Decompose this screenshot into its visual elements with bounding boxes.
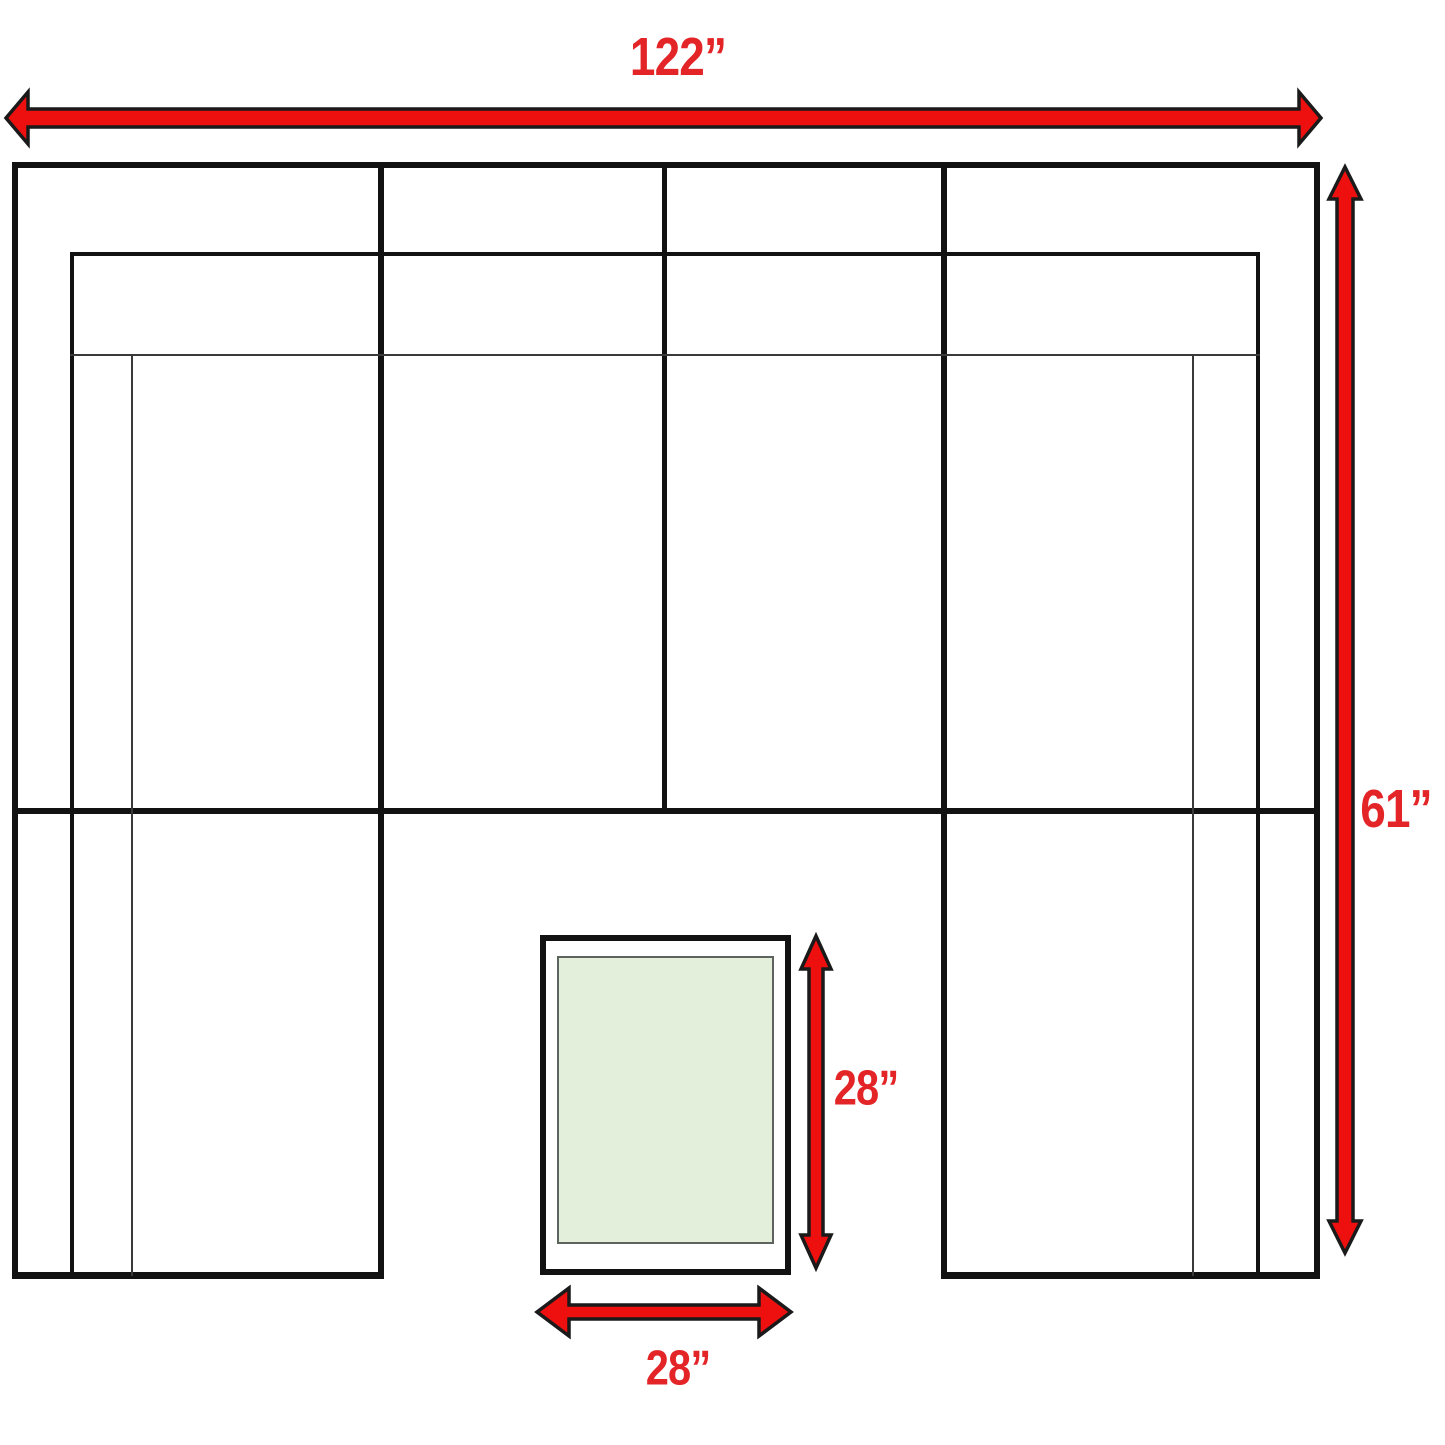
sofa-width-arrow (6, 92, 1321, 144)
sofa-right-arm-bottom-edge (941, 1272, 1320, 1279)
floor-plan-drawing (0, 0, 1445, 1445)
sofa-depth-arrow (1329, 167, 1361, 1253)
sofa-outer-right-edge (1314, 162, 1320, 1279)
backrest-front-right-line (1256, 252, 1260, 1276)
ottoman-width-dimension-label: 28” (646, 1345, 711, 1394)
backrest-front-top-line (70, 252, 1260, 256)
sofa-divider-center (662, 162, 667, 814)
ottoman-width-arrow (537, 1288, 791, 1336)
seat-cushion-line (70, 354, 1260, 356)
dimension-diagram-canvas: 122” 61” 28” 28” (0, 0, 1445, 1445)
backrest-front-left-line (70, 252, 74, 1276)
sofa-divider-right (941, 162, 947, 1279)
sofa-left-arm-bottom-edge (12, 1272, 384, 1279)
sofa-width-dimension-label: 122” (630, 30, 726, 84)
sofa-divider-left (378, 162, 384, 1279)
left-arm-inner-line (131, 354, 133, 1276)
ottoman-depth-arrow (801, 936, 831, 1268)
ottoman-depth-dimension-label: 28” (834, 1065, 899, 1114)
ottoman-top-surface (558, 957, 773, 1243)
sofa-outer-left-edge (12, 162, 18, 1279)
right-arm-inner-line (1192, 354, 1194, 1276)
sofa-depth-dimension-label: 61” (1360, 782, 1431, 836)
